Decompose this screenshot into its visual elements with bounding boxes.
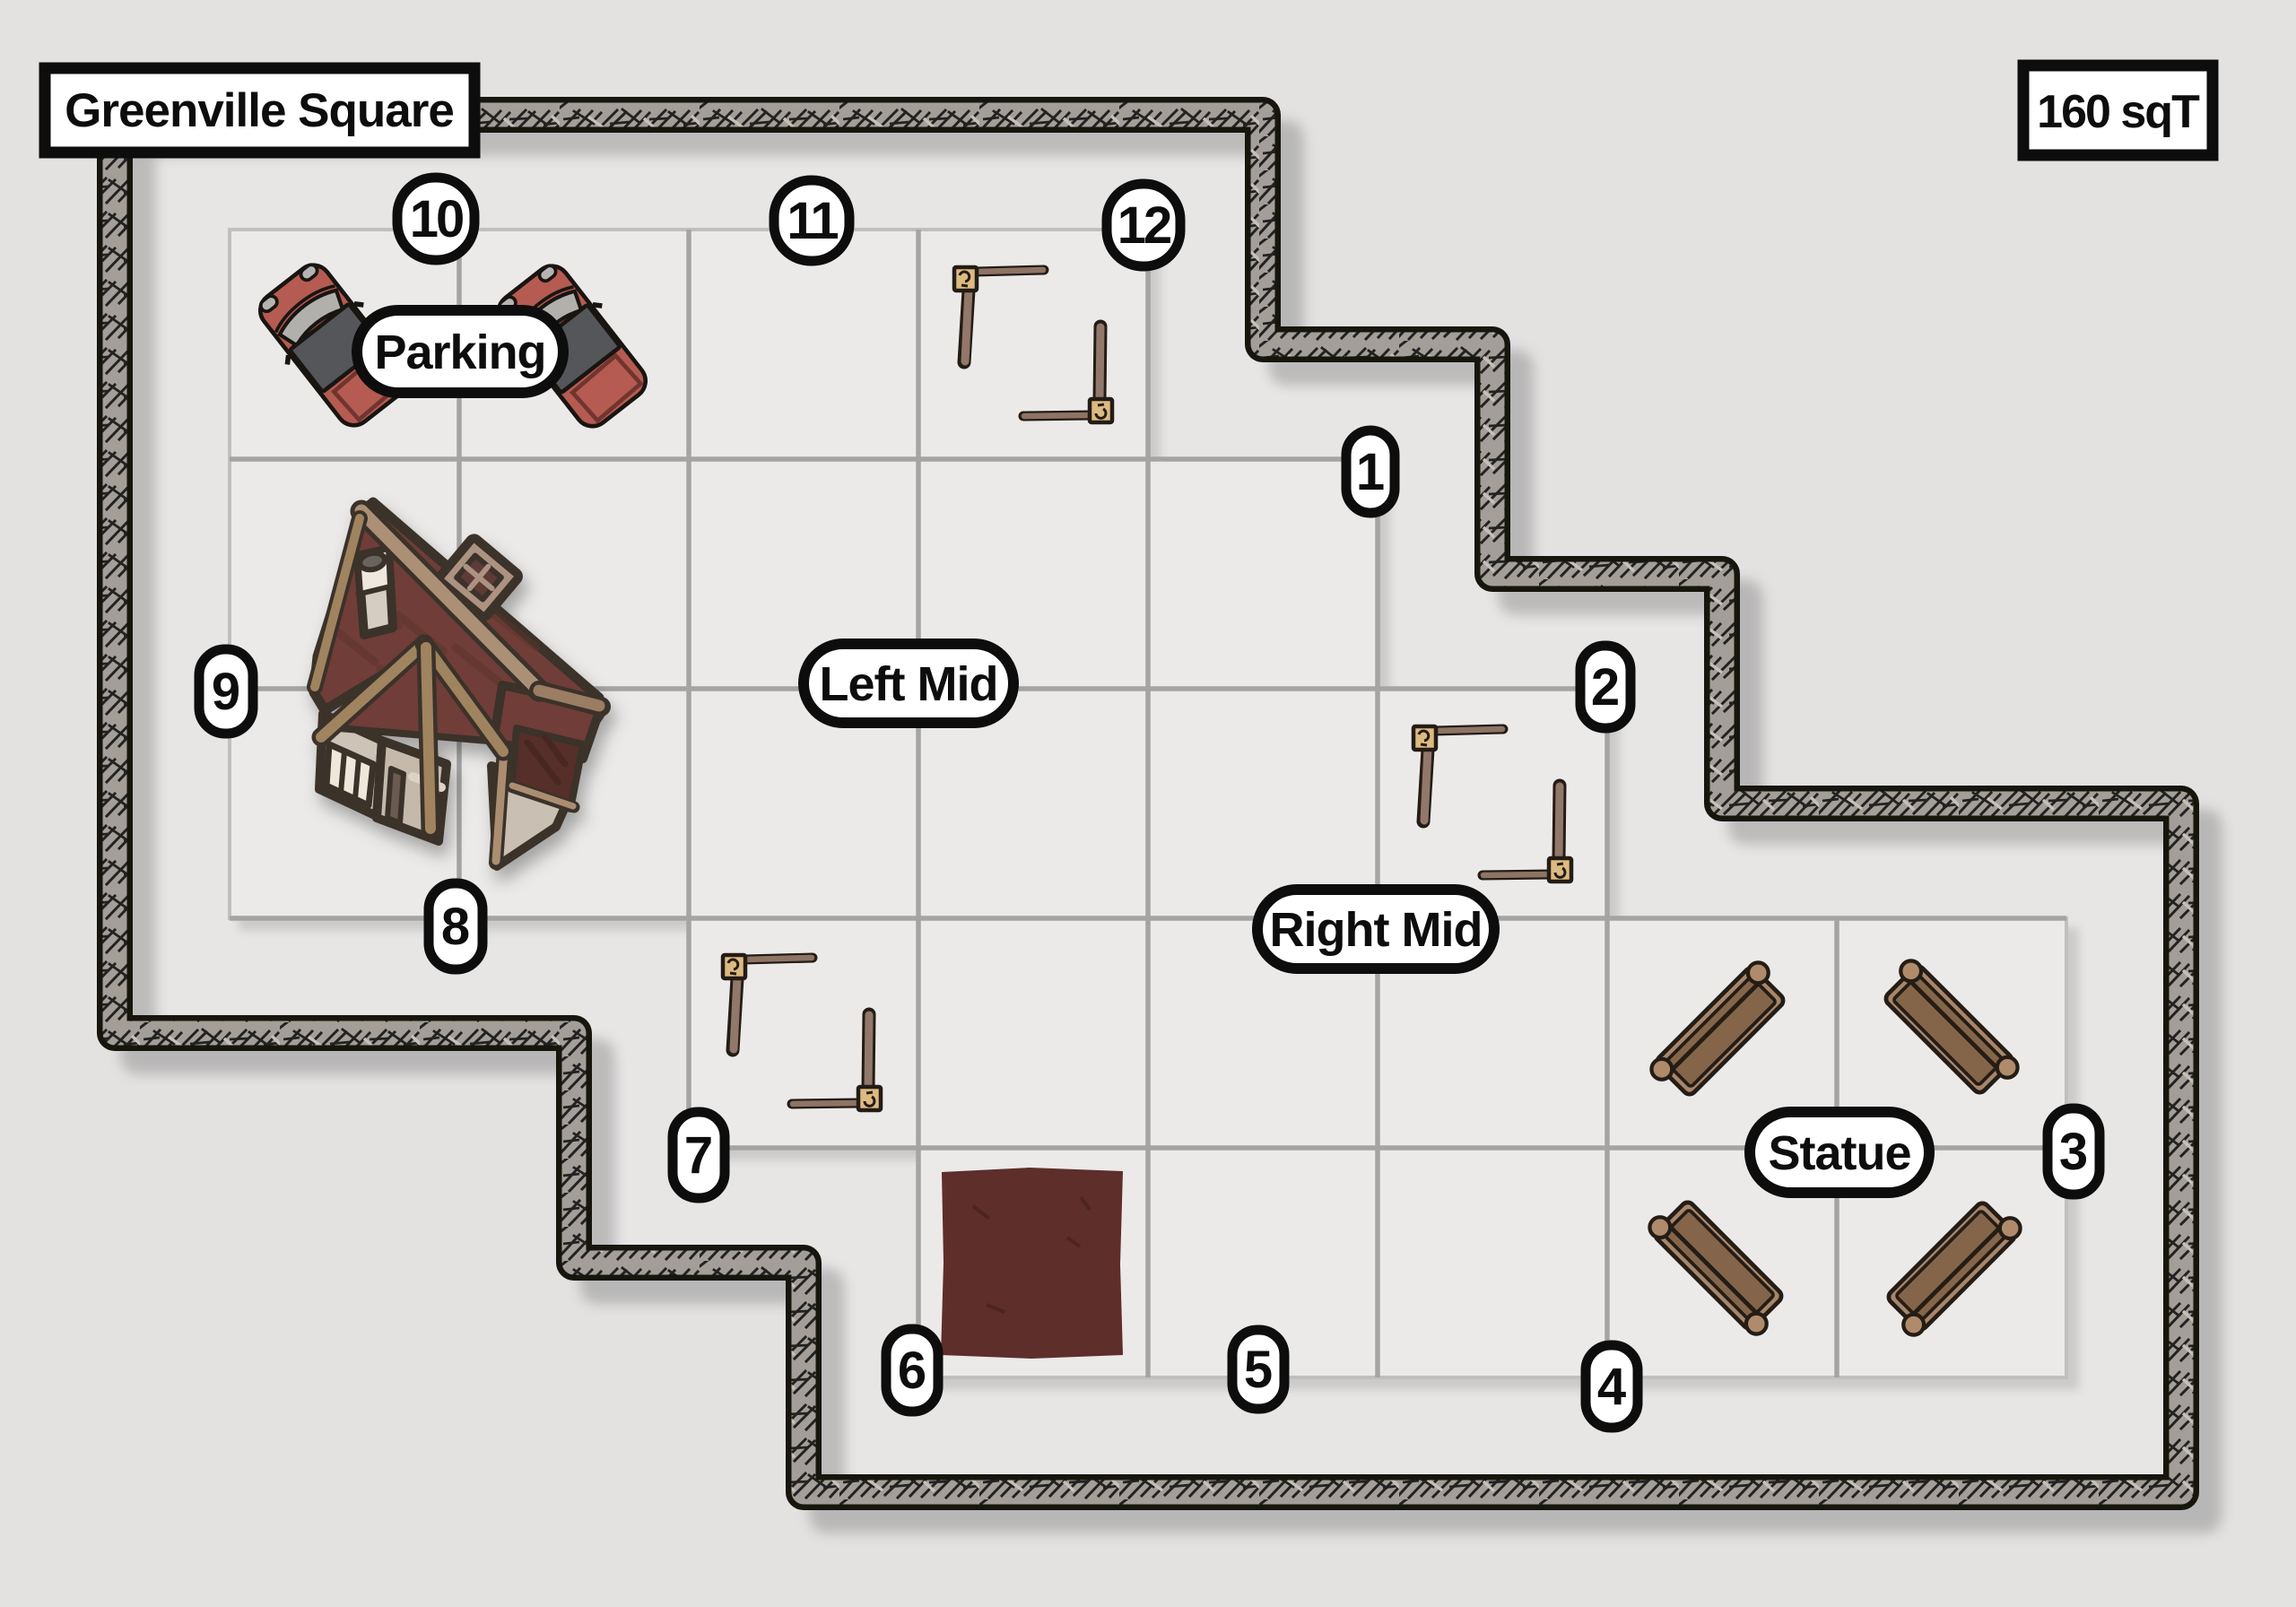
- svg-text:1: 1: [1356, 443, 1385, 501]
- svg-text:6: 6: [898, 1342, 926, 1400]
- svg-text:Left Mid: Left Mid: [820, 657, 998, 711]
- svg-text:5: 5: [1244, 1341, 1273, 1399]
- svg-text:9: 9: [212, 663, 240, 721]
- svg-text:Parking: Parking: [374, 326, 545, 379]
- svg-text:8: 8: [441, 898, 470, 956]
- svg-text:Right Mid: Right Mid: [1270, 903, 1483, 957]
- svg-text:7: 7: [684, 1126, 713, 1185]
- svg-text:3: 3: [2059, 1123, 2088, 1181]
- svg-text:4: 4: [1597, 1358, 1626, 1416]
- svg-text:10: 10: [410, 190, 463, 248]
- svg-text:2: 2: [1591, 658, 1620, 717]
- svg-text:Greenville Square: Greenville Square: [65, 84, 454, 137]
- svg-text:12: 12: [1118, 196, 1170, 255]
- svg-text:160 sqT: 160 sqT: [2037, 86, 2200, 138]
- svg-text:Statue: Statue: [1768, 1126, 1910, 1180]
- svg-text:11: 11: [787, 192, 838, 250]
